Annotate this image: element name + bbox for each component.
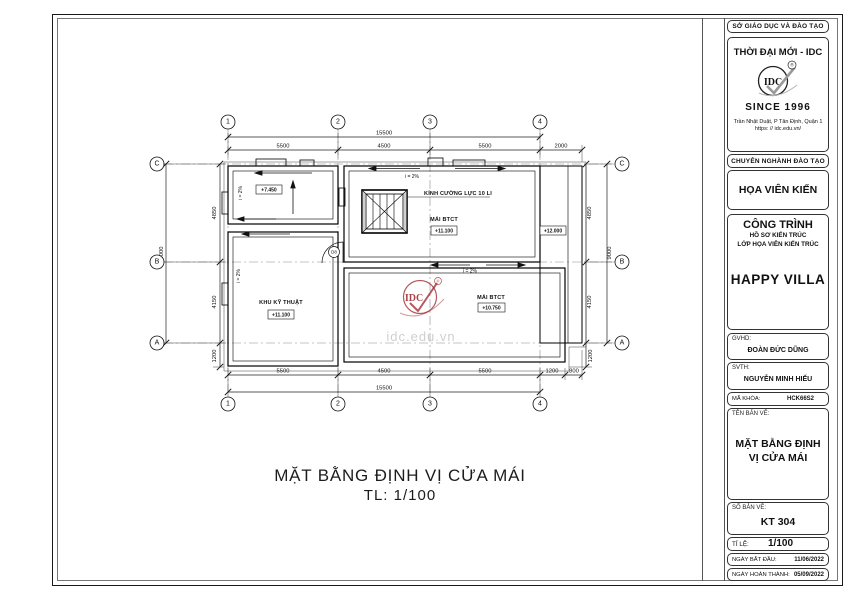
- drawing-name-label: TÊN BẢN VẼ:: [732, 411, 769, 417]
- grid-bubble-2-top: 2: [336, 119, 340, 126]
- dim-top-overall: 15500: [376, 131, 392, 137]
- drawing-title: MẶT BẰNG ĐỊNH VỊ CỬA MÁI: [160, 466, 640, 486]
- dim-right-3: 1200: [588, 350, 594, 363]
- door-swing: D8: [322, 242, 343, 263]
- svth-name: NGUYỄN MINH HIẾU: [728, 376, 828, 383]
- titleblock-gvhd: GVHD: ĐOÀN ĐỨC DŨNG: [727, 333, 829, 360]
- drawing-name-value: MẶT BẰNG ĐỊNH VỊ CỬA MÁI: [728, 437, 828, 465]
- skylight: [362, 190, 407, 233]
- dim-bot-4: 1200: [546, 369, 559, 375]
- drawing-scale: TL: 1/100: [160, 487, 640, 504]
- roof-low-label: MÁI BTCT: [477, 294, 505, 301]
- code-value: HCK66S2: [787, 396, 814, 402]
- grid-bubble-A-right: A: [620, 340, 625, 347]
- svth-label: SVTH:: [732, 365, 750, 371]
- dim-top-4: 2000: [555, 144, 568, 150]
- grid-bubbles: 1 2 3 4 1 2 3 4 C B A C B A: [150, 115, 629, 411]
- dim-top-3: 5500: [479, 144, 492, 150]
- level-tech: +11.100: [272, 313, 290, 319]
- grid-bubble-1-bottom: 1: [226, 401, 230, 408]
- start-date-value: 11/06/2022: [794, 557, 824, 563]
- door-tag: D8: [331, 250, 337, 255]
- titleblock-separator-line-2: [724, 18, 725, 581]
- gvhd-name: ĐOÀN ĐỨC DŨNG: [728, 347, 828, 354]
- titleblock-major-header: CHUYÊN NGHÀNH ĐÀO TẠO: [727, 154, 829, 168]
- watermark-reg-mark: ®: [437, 279, 440, 284]
- grid-bubble-1-top: 1: [226, 119, 230, 126]
- scale-value: 1/100: [768, 538, 793, 549]
- dim-right-1: 4850: [587, 207, 593, 220]
- titleblock-dept: SỞ GIÁO DỤC VÀ ĐÀO TẠO: [727, 20, 829, 33]
- level-mid: +11.100: [435, 229, 453, 235]
- dim-left-2: 4150: [212, 296, 218, 309]
- end-date-value: 05/09/2022: [794, 572, 824, 578]
- gvhd-label: GVHD:: [732, 336, 751, 342]
- project-sub-2: LỚP HỌA VIÊN KIẾN TRÚC: [728, 240, 828, 249]
- dim-bot-1: 5500: [277, 369, 290, 375]
- dim-top-1: 5500: [277, 144, 290, 150]
- tech-room-label: KHU KỸ THUẬT: [259, 299, 303, 306]
- titleblock-sheet-no: SỐ BẢN VẼ: KT 304: [727, 502, 829, 535]
- watermark-logo-text: IDC: [405, 293, 423, 304]
- roof-mid-outline: [344, 166, 540, 262]
- end-date-label: NGÀY HOÀN THÀNH:: [732, 572, 790, 578]
- sheet-no-value: KT 304: [728, 516, 828, 528]
- titleblock-drawing-name: TÊN BẢN VẼ: MẶT BẰNG ĐỊNH VỊ CỬA MÁI: [727, 408, 829, 500]
- watermark-url: idc.edu.vn: [386, 329, 455, 344]
- address-line-1: Trần Nhật Duật, P Tân Định, Quận 1: [728, 119, 828, 126]
- sheet-no-label: SỐ BẢN VẼ:: [732, 505, 766, 511]
- grid-bubble-3-bottom: 3: [428, 401, 432, 408]
- roof-low-outline: [344, 268, 565, 362]
- grid-bubble-2-bottom: 2: [336, 401, 340, 408]
- level-low: +10.750: [482, 306, 500, 312]
- titleblock-logo-section: THỜI ĐẠI MỚI - IDC IDC ® SINCE 1996 Trần…: [727, 37, 829, 152]
- dim-top-2: 4500: [378, 144, 391, 150]
- level-strip: +12.000: [544, 229, 562, 235]
- titleblock-scale: TỈ LỆ: 1/100: [727, 537, 829, 551]
- idc-logo: IDC ®: [743, 59, 813, 101]
- slope-note-low: i = 2%: [463, 269, 478, 275]
- floor-plan-drawing: 15500 5500 4500 5500 2000 5500 4500 5500…: [140, 105, 630, 415]
- room-terrace-outline: [228, 166, 338, 224]
- dim-bot-3: 5500: [479, 369, 492, 375]
- slope-note-mid: i = 2%: [405, 174, 420, 180]
- grid-bubble-B-left: B: [155, 259, 160, 266]
- titleblock-major: HỌA VIÊN KIẾN TRÚC: [727, 170, 829, 210]
- watermark: IDC ® idc.edu.vn: [386, 278, 455, 345]
- brand-name: THỜI ĐẠI MỚI - IDC: [728, 47, 828, 58]
- address-line-2: https: // idc.edu.vn/: [728, 126, 828, 133]
- grid-bubble-C-right: C: [619, 161, 624, 168]
- since-text: SINCE 1996: [728, 102, 828, 113]
- dimension-lines: [166, 137, 607, 392]
- titleblock-svth: SVTH: NGUYỄN MINH HIẾU: [727, 362, 829, 390]
- dimension-ticks: [163, 134, 610, 395]
- grid-bubble-C-left: C: [154, 161, 159, 168]
- grid-bubble-4-top: 4: [538, 119, 542, 126]
- dim-bottom-overall: 15500: [376, 386, 392, 392]
- dim-right-overall: 9000: [607, 247, 613, 260]
- level-terrace: +7.450: [261, 188, 277, 194]
- roof-mid-label: MÁI BTCT: [430, 216, 458, 223]
- titleblock-start-date: NGÀY BẮT ĐẦU: 11/06/2022: [727, 553, 829, 566]
- extension-lines: [161, 133, 612, 396]
- start-date-label: NGÀY BẮT ĐẦU:: [732, 557, 777, 563]
- grid-bubble-4-bottom: 4: [538, 401, 542, 408]
- dim-left-1: 4850: [212, 207, 218, 220]
- skylight-note: KÍNH CƯỜNG LỰC 10 LI: [424, 189, 492, 197]
- scale-label: TỈ LỆ:: [732, 541, 749, 548]
- dimension-texts: 15500 5500 4500 5500 2000 5500 4500 5500…: [159, 131, 613, 392]
- project-sub-1: HỒ SƠ KIẾN TRÚC: [728, 231, 828, 240]
- room-tech-outline: [228, 232, 338, 366]
- titleblock-project: CÔNG TRÌNH HỒ SƠ KIẾN TRÚC LỚP HỌA VIÊN …: [727, 214, 829, 330]
- project-header: CÔNG TRÌNH: [728, 219, 828, 231]
- roof-strip-outline: [540, 166, 582, 343]
- slope-arrows: [237, 166, 525, 267]
- grid-bubble-B-right: B: [620, 259, 625, 266]
- grid-bubble-A-left: A: [155, 340, 160, 347]
- titleblock-code: MÃ KHÓA: HCK66S2: [727, 392, 829, 406]
- code-label: MÃ KHÓA:: [732, 396, 760, 402]
- dim-bot-5: 800: [569, 369, 579, 375]
- grid-bubble-3-top: 3: [428, 119, 432, 126]
- dim-right-2: 4150: [587, 296, 593, 309]
- titleblock-end-date: NGÀY HOÀN THÀNH: 05/09/2022: [727, 568, 829, 581]
- slope-note-tech: i = 2%: [236, 268, 242, 283]
- dim-left-3: 1200: [212, 350, 218, 363]
- project-name: HAPPY VILLA: [728, 272, 828, 287]
- dim-bot-2: 4500: [378, 369, 391, 375]
- titleblock-separator-line: [702, 18, 703, 581]
- slope-note-terrace: i = 2%: [238, 185, 244, 200]
